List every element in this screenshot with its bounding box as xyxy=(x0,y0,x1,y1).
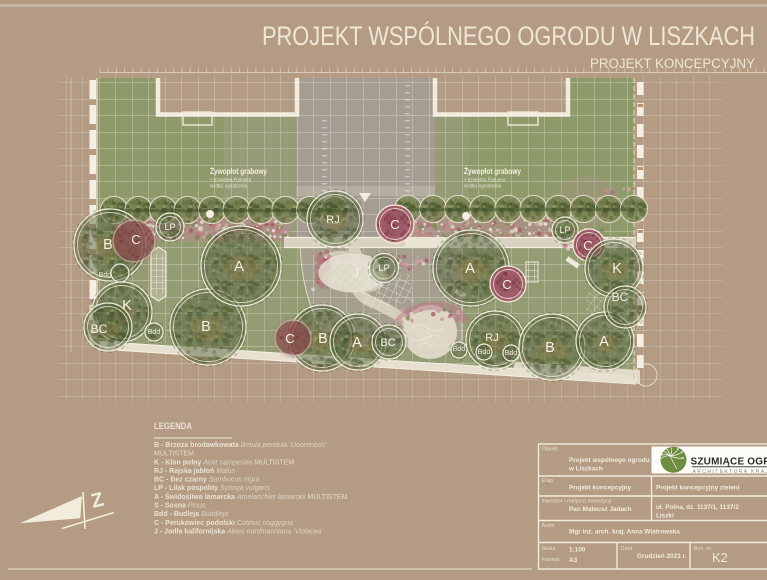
svg-text:wzdłuż ogrodzenia: wzdłuż ogrodzenia xyxy=(464,184,501,190)
svg-text:Żywopłot grabowy: Żywopłot grabowy xyxy=(464,166,521,176)
svg-text:S: S xyxy=(425,327,433,341)
svg-text:LEGENDA: LEGENDA xyxy=(154,421,192,431)
svg-text:w Liszkach: w Liszkach xyxy=(568,466,603,473)
svg-text:Etap: Etap xyxy=(542,478,554,484)
svg-text:Inwestor i miejsce inwestycji: Inwestor i miejsce inwestycji xyxy=(542,499,612,505)
svg-text:A: A xyxy=(234,258,244,275)
svg-text:LP - Lilak pospolity Syringa v: LP - Lilak pospolity Syringa vulgaris xyxy=(154,485,270,492)
svg-text:B - Brzoza brodawkowata Betula: B - Brzoza brodawkowata Betula pendula ‘… xyxy=(154,442,327,449)
svg-text:Bdd: Bdd xyxy=(148,329,161,336)
svg-text:BC: BC xyxy=(380,337,395,349)
svg-text:Liszki: Liszki xyxy=(656,513,674,520)
svg-text:SZUMIĄCE OGRODY: SZUMIĄCE OGRODY xyxy=(691,456,767,467)
svg-text:BC: BC xyxy=(612,290,629,304)
svg-text:C: C xyxy=(390,217,399,232)
svg-text:Data: Data xyxy=(621,546,634,552)
svg-text:A - Świdośliwa lamarcka Amelan: A - Świdośliwa lamarcka Amelanchier lama… xyxy=(154,492,348,501)
svg-text:K2: K2 xyxy=(712,550,728,565)
svg-text:B: B xyxy=(318,331,328,347)
svg-text:wzdłuż ogrodzenia: wzdłuż ogrodzenia xyxy=(210,184,247,190)
svg-text:PROJEKT KONCEPCYJNY: PROJEKT KONCEPCYJNY xyxy=(590,56,755,71)
svg-text:K - Klon polny Acer campestre: K - Klon polny Acer campestre MULTISTEM xyxy=(154,459,294,466)
svg-text:Bdd: Bdd xyxy=(505,350,518,357)
svg-text:Format: Format xyxy=(542,557,560,563)
svg-text:C: C xyxy=(502,277,511,292)
svg-text:Bdd: Bdd xyxy=(478,349,491,356)
svg-text:1:100: 1:100 xyxy=(569,547,586,554)
svg-text:ARCHITEKTURA KRAJOBRAZU: ARCHITEKTURA KRAJOBRAZU xyxy=(693,469,767,475)
svg-text:B: B xyxy=(201,319,211,335)
svg-text:MULTISTEM: MULTISTEM xyxy=(154,451,194,458)
svg-text:LP: LP xyxy=(559,225,570,235)
svg-text:LP: LP xyxy=(378,263,390,274)
svg-text:Bdd: Bdd xyxy=(99,272,112,279)
svg-text:BC: BC xyxy=(91,322,108,336)
svg-text:Mgr inż. arch. kraj. Anna Wiat: Mgr inż. arch. kraj. Anna Wiatrowska xyxy=(569,529,680,536)
svg-text:B: B xyxy=(545,340,555,356)
svg-text:Autor: Autor xyxy=(542,523,556,529)
svg-text:Żywopłot grabowy: Żywopłot grabowy xyxy=(210,166,267,176)
svg-text:BC - Bez czarny Sambucus nigra: BC - Bez czarny Sambucus nigra xyxy=(154,477,260,484)
svg-text:RJ: RJ xyxy=(485,332,498,344)
svg-text:J - Jodła kalifornijska Abies: J - Jodła kalifornijska Abies nordmannia… xyxy=(154,529,324,536)
svg-text:RJ - Rajska jabłoń Malus: RJ - Rajska jabłoń Malus xyxy=(154,468,235,475)
svg-text:A: A xyxy=(465,260,475,277)
svg-text:Pan Mateusz Jadach: Pan Mateusz Jadach xyxy=(569,506,632,513)
svg-text:Grudzień 2023 r.: Grudzień 2023 r. xyxy=(637,553,687,560)
svg-text:Bdd: Bdd xyxy=(453,346,466,353)
svg-text:RJ: RJ xyxy=(326,214,339,226)
svg-text:A3: A3 xyxy=(569,557,578,564)
svg-text:Bdd - Budleja Buddleja: Bdd - Budleja Buddleja xyxy=(154,511,228,518)
svg-text:LP: LP xyxy=(164,222,175,232)
svg-text:Skala: Skala xyxy=(542,546,557,552)
svg-text:S - Sosna Pinus: S - Sosna Pinus xyxy=(154,503,206,510)
svg-text:Projekt koncepcyjny: Projekt koncepcyjny xyxy=(569,485,632,492)
svg-text:C: C xyxy=(131,232,140,247)
svg-text:PROJEKT WSPÓLNEGO OGRODU W LIS: PROJEKT WSPÓLNEGO OGRODU W LISZKACH xyxy=(262,20,755,51)
svg-text:A: A xyxy=(599,334,609,350)
svg-text:K: K xyxy=(612,261,622,277)
svg-text:ul. Polna, dz. 1137/1, 1137/2: ul. Polna, dz. 1137/1, 1137/2 xyxy=(656,504,739,511)
svg-text:J: J xyxy=(353,268,359,280)
svg-text:Projekt koncepcyjny zieleni: Projekt koncepcyjny zieleni xyxy=(656,485,740,492)
svg-text:Obiekt: Obiekt xyxy=(542,447,559,453)
svg-text:Projekt wspólnego ogrodu: Projekt wspólnego ogrodu xyxy=(569,457,650,464)
svg-text:A: A xyxy=(352,335,362,351)
svg-text:C: C xyxy=(285,331,294,346)
svg-text:B: B xyxy=(103,237,113,253)
svg-text:Rys. nr: Rys. nr xyxy=(694,546,712,552)
svg-text:C - Perukowiec podolski Cotinu: C - Perukowiec podolski Cotinus coggygri… xyxy=(154,520,293,527)
